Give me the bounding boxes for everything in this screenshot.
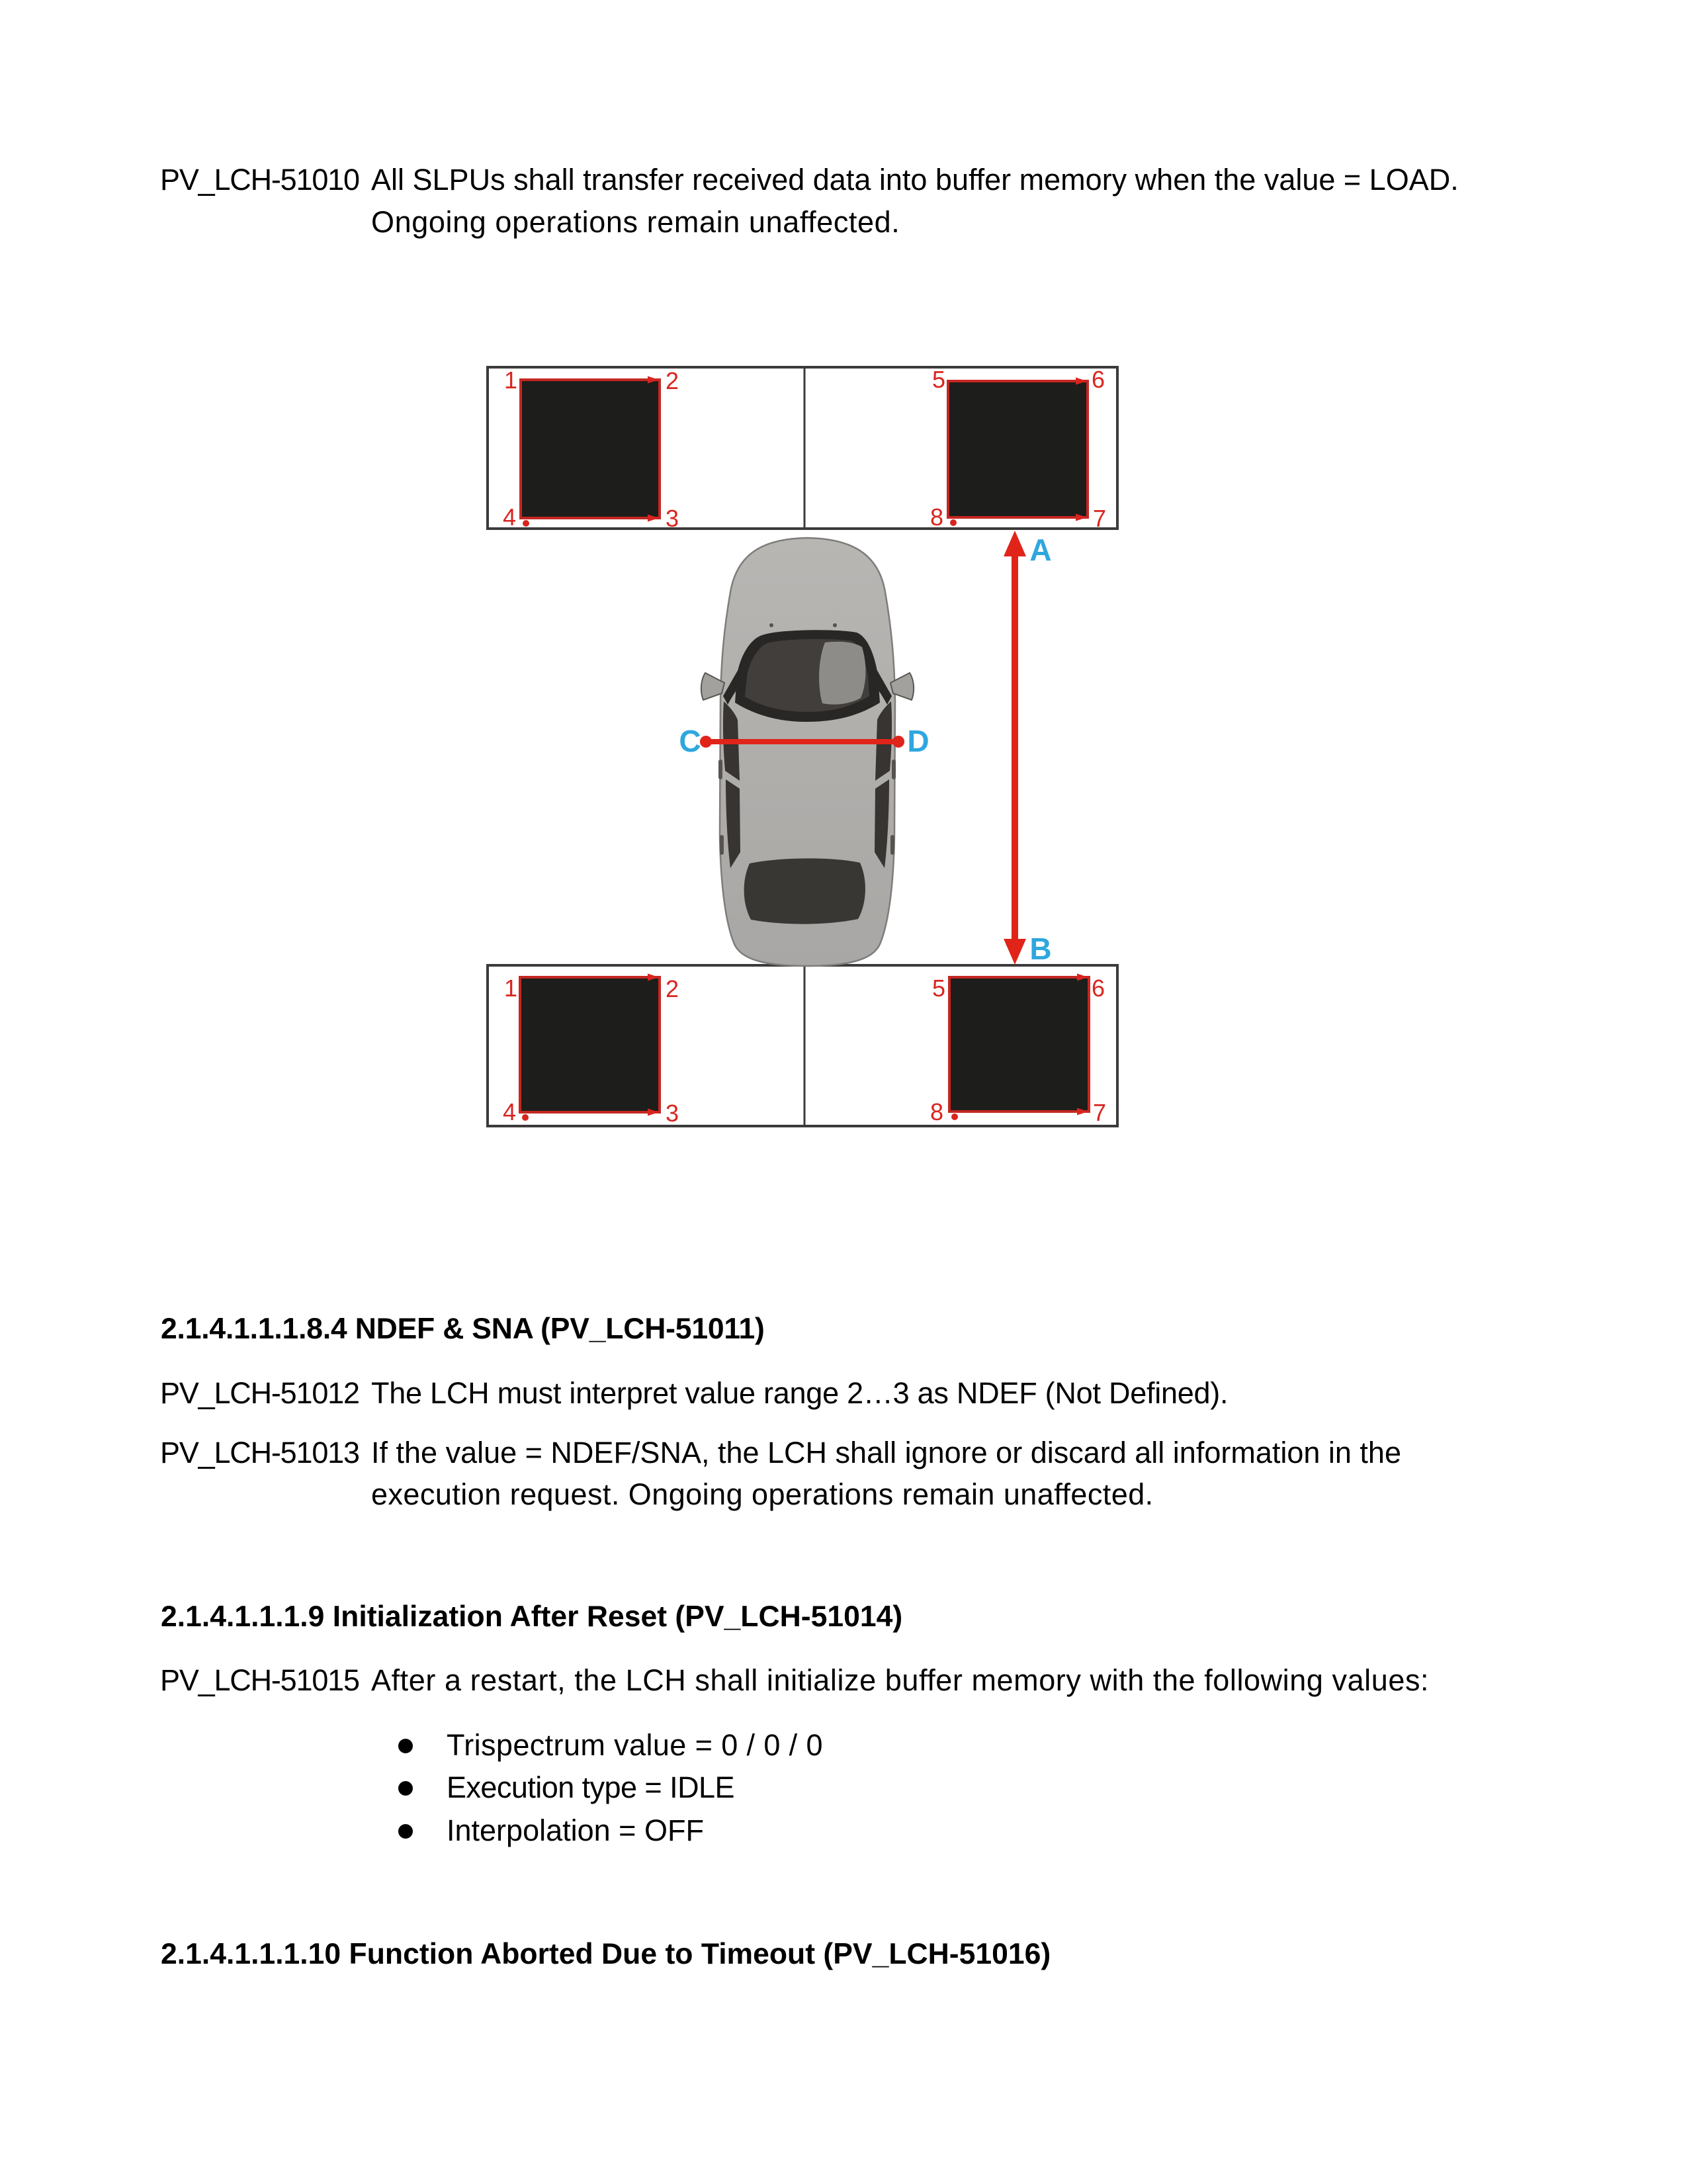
svg-text:2: 2 <box>666 975 679 1002</box>
svg-text:1: 1 <box>504 975 517 1002</box>
svg-text:5: 5 <box>932 366 945 393</box>
svg-text:7: 7 <box>1093 1099 1106 1126</box>
svg-text:A: A <box>1029 533 1051 567</box>
svg-text:8: 8 <box>930 503 943 531</box>
svg-text:2: 2 <box>666 367 679 394</box>
svg-text:3: 3 <box>666 505 679 532</box>
svg-text:4: 4 <box>503 1098 516 1125</box>
svg-text:6: 6 <box>1092 975 1105 1002</box>
svg-text:4: 4 <box>503 503 516 531</box>
svg-text:C: C <box>679 724 701 758</box>
svg-text:1: 1 <box>504 367 517 394</box>
svg-text:7: 7 <box>1093 505 1106 532</box>
svg-text:D: D <box>907 724 929 758</box>
svg-text:B: B <box>1029 932 1051 966</box>
svg-text:8: 8 <box>930 1098 943 1125</box>
svg-text:5: 5 <box>932 975 945 1002</box>
svg-text:3: 3 <box>666 1100 679 1127</box>
svg-text:6: 6 <box>1092 366 1105 393</box>
